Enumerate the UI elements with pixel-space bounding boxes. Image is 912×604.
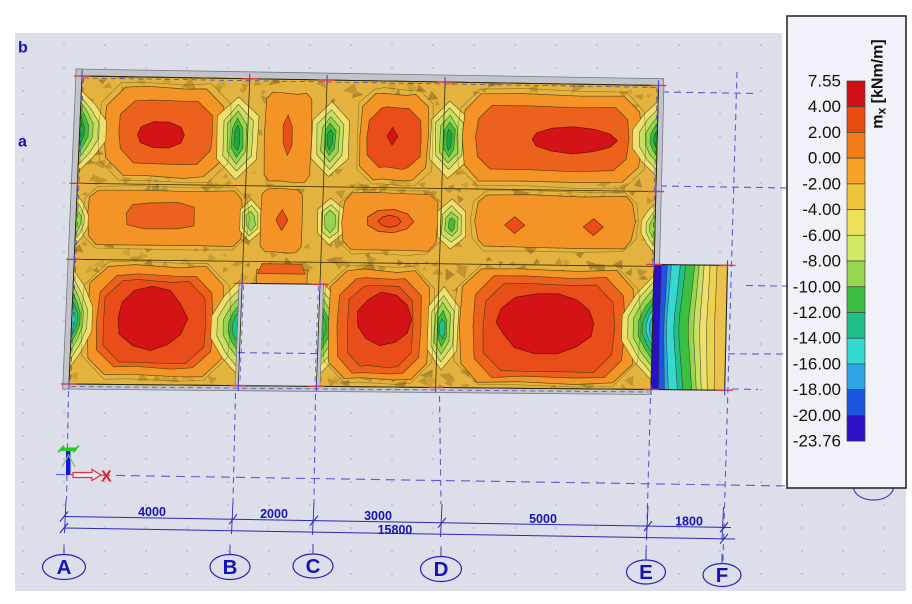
svg-text:C: C (306, 555, 321, 578)
svg-text:mx [kNm/m]: mx [kNm/m] (870, 39, 889, 128)
svg-text:A: A (57, 556, 72, 579)
svg-text:-14.00: -14.00 (793, 329, 841, 348)
svg-text:4000: 4000 (138, 505, 166, 519)
svg-text:0.00: 0.00 (808, 149, 841, 168)
svg-text:-10.00: -10.00 (793, 277, 841, 296)
svg-text:-4.00: -4.00 (802, 200, 841, 219)
svg-text:-18.00: -18.00 (793, 380, 841, 399)
svg-text:1800: 1800 (675, 515, 703, 529)
svg-text:B: B (223, 556, 238, 579)
svg-text:b: b (18, 40, 28, 57)
svg-text:-12.00: -12.00 (793, 303, 841, 322)
svg-text:-23.76: -23.76 (793, 432, 841, 451)
svg-text:7.55: 7.55 (808, 72, 841, 91)
svg-text:4.00: 4.00 (808, 97, 841, 116)
svg-text:F: F (716, 564, 729, 587)
svg-text:-8.00: -8.00 (802, 252, 841, 271)
svg-text:-16.00: -16.00 (793, 354, 841, 373)
svg-text:X: X (101, 469, 112, 486)
svg-text:-20.00: -20.00 (793, 406, 841, 425)
svg-text:D: D (434, 558, 449, 581)
svg-text:a: a (18, 134, 27, 151)
svg-text:3000: 3000 (364, 509, 392, 523)
svg-text:2000: 2000 (260, 507, 288, 521)
svg-text:-6.00: -6.00 (802, 226, 841, 245)
svg-text:E: E (639, 561, 653, 584)
svg-text:15800: 15800 (378, 523, 413, 537)
svg-text:5000: 5000 (529, 512, 557, 526)
svg-text:-2.00: -2.00 (802, 174, 841, 193)
svg-text:2.00: 2.00 (808, 123, 841, 142)
